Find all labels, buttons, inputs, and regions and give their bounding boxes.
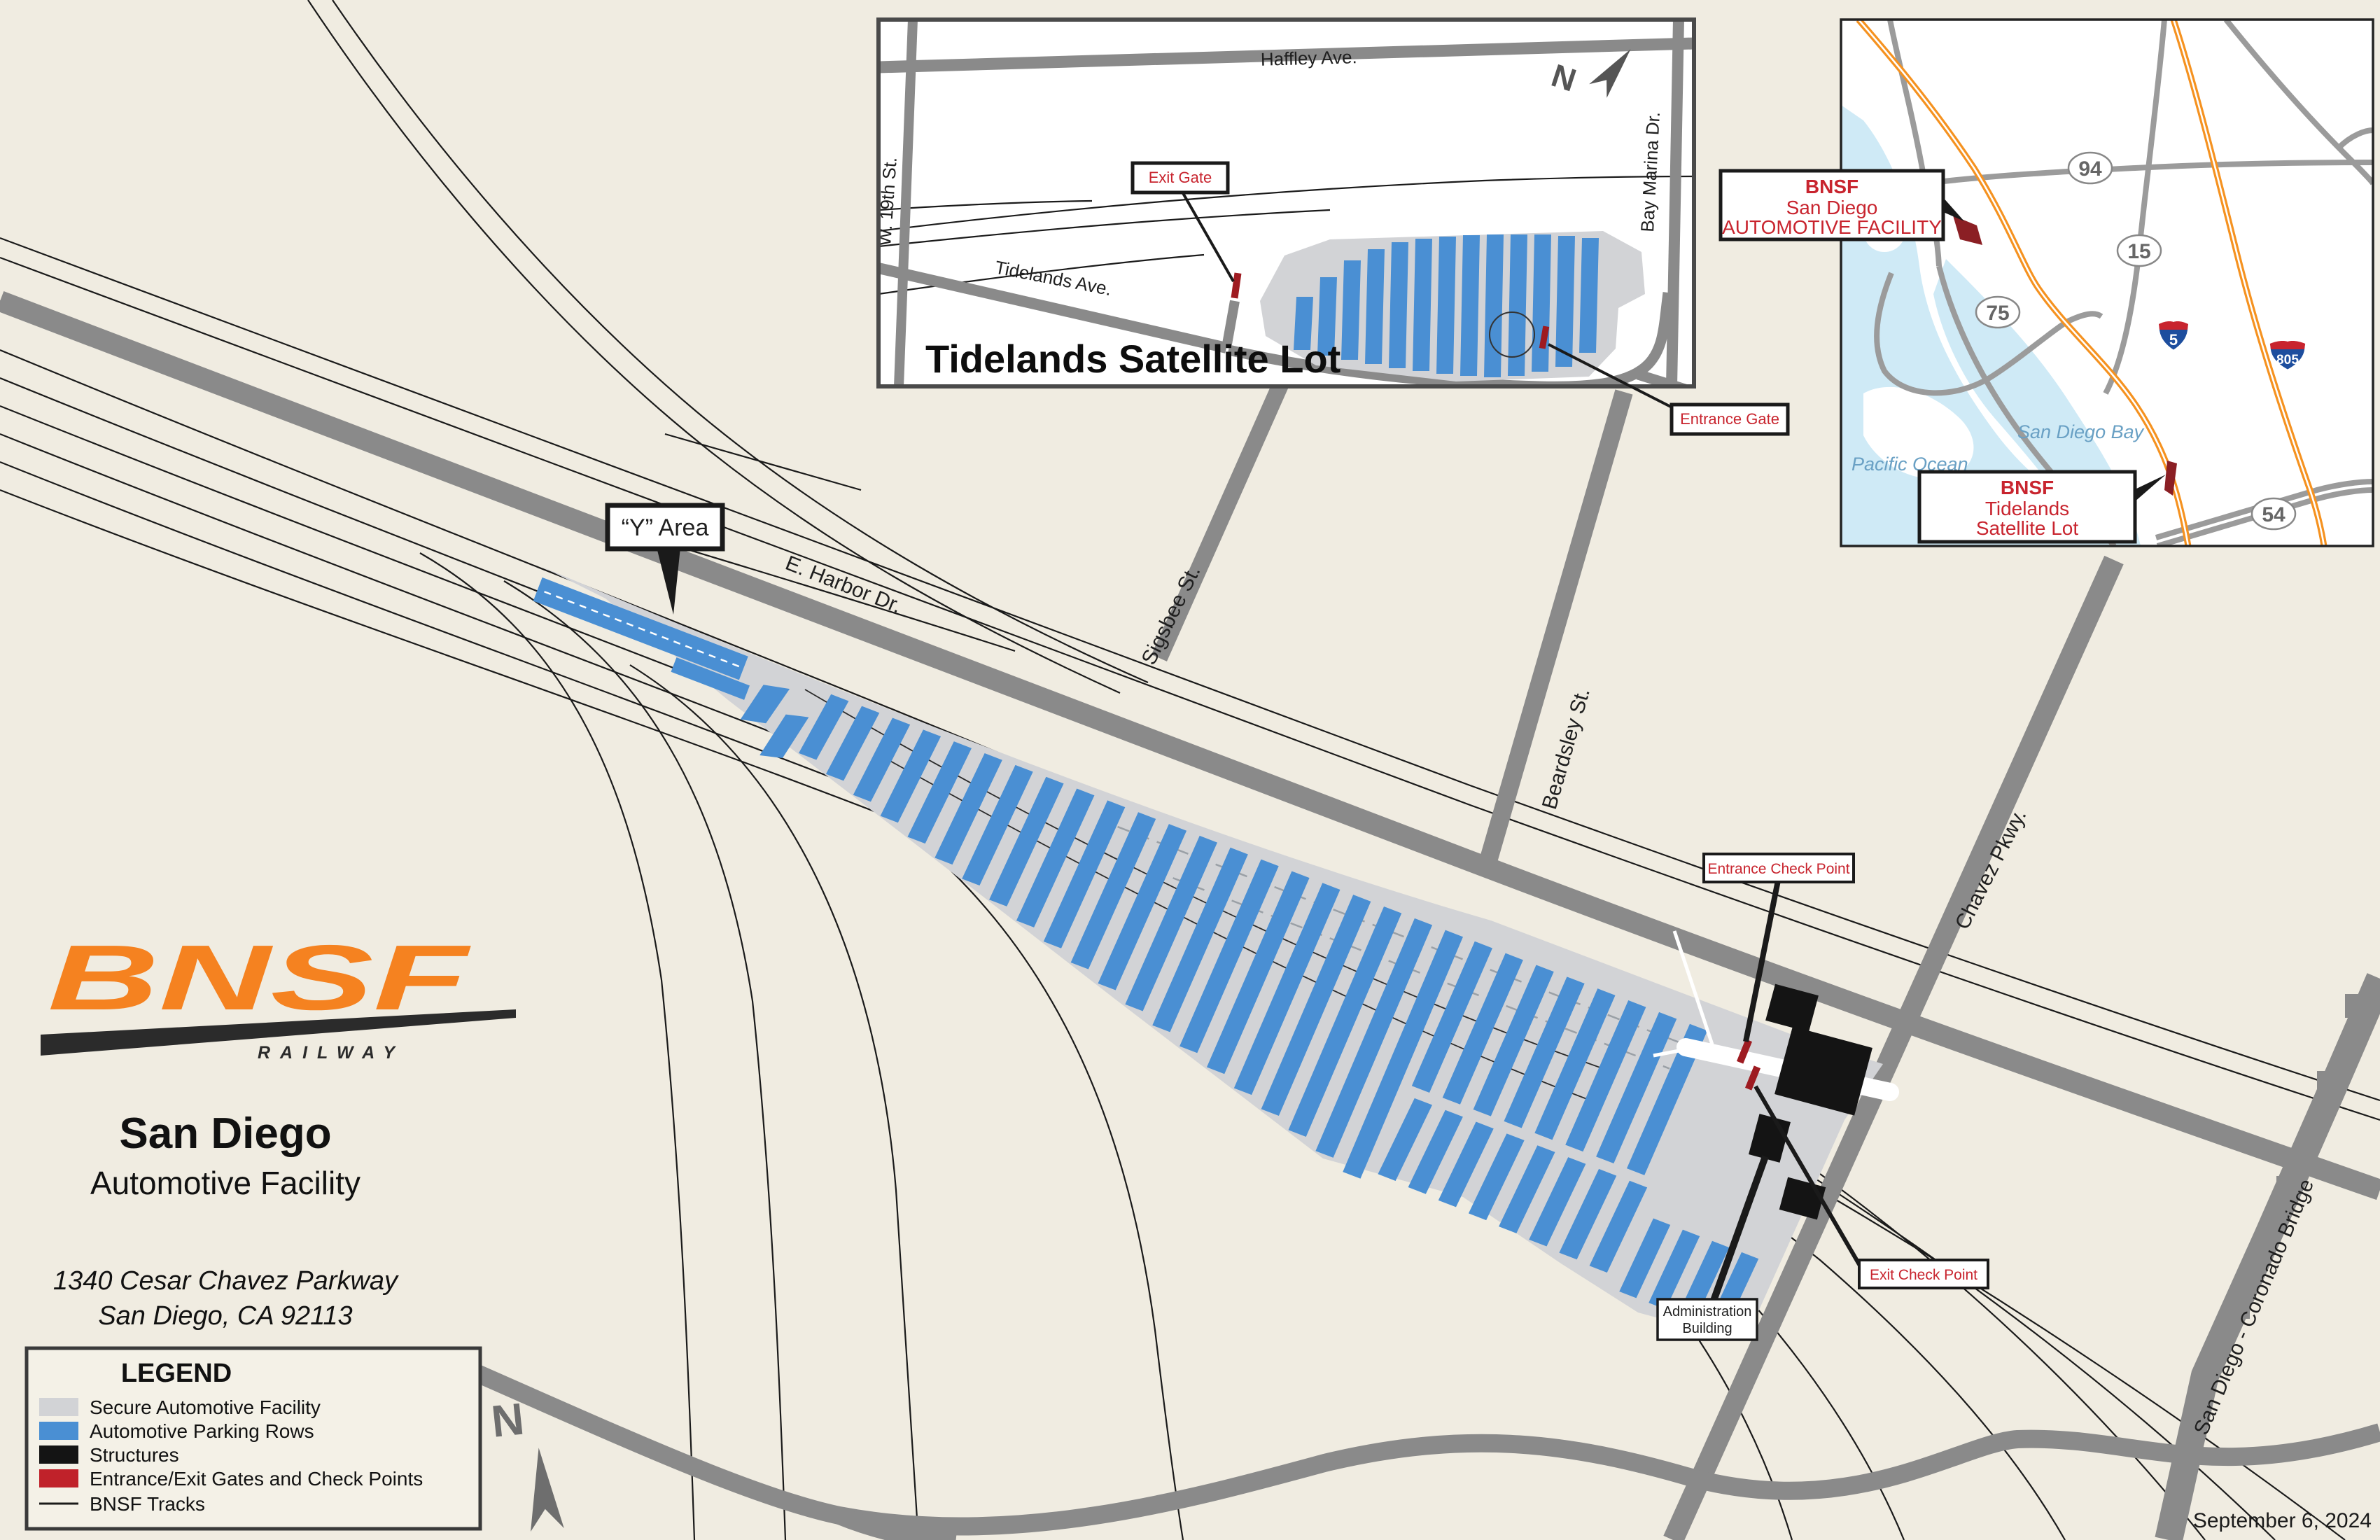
entrance-gate-label: Entrance Gate — [1680, 410, 1779, 428]
legend-label: BNSF Tracks — [90, 1493, 205, 1515]
street-label-haffley: Haffley Ave. — [1260, 46, 1357, 70]
legend-swatch-structures — [39, 1445, 78, 1464]
tidelands-callout-line1: BNSF — [2001, 477, 2054, 498]
y-area-label: “Y” Area — [622, 514, 709, 541]
legend-title: LEGEND — [121, 1359, 232, 1388]
legend-label: Structures — [90, 1444, 179, 1466]
bnsf-logo-text: BNSF — [48, 926, 472, 1029]
route-15-shield: 15 — [2127, 240, 2150, 263]
page-title-city: San Diego — [119, 1109, 331, 1158]
facility-callout-line2: San Diego — [1786, 197, 1878, 218]
tidelands-inset: Haffley Ave. W. 19th St. Bay Marina Dr. … — [874, 20, 1788, 434]
tidelands-callout-line3: Satellite Lot — [1976, 517, 2079, 539]
legend-label: Entrance/Exit Gates and Check Points — [90, 1468, 423, 1490]
north-letter: N — [489, 1393, 526, 1446]
svg-text:5: 5 — [2169, 331, 2178, 349]
regional-tidelands-callout: BNSF Tidelands Satellite Lot — [1919, 472, 2166, 542]
san-diego-bay-label: San Diego Bay — [2017, 421, 2145, 442]
map-date: September 6, 2024 — [2193, 1509, 2372, 1532]
legend-swatch-gates — [39, 1469, 78, 1487]
exit-check-label: Exit Check Point — [1870, 1267, 1977, 1283]
address-line2: San Diego, CA 92113 — [98, 1301, 352, 1331]
administration-label-line2: Building — [1682, 1321, 1732, 1336]
route-94-shield: 94 — [2078, 157, 2102, 181]
legend-label: Automotive Parking Rows — [90, 1420, 314, 1442]
svg-text:805: 805 — [2276, 353, 2299, 367]
exit-gate-label: Exit Gate — [1149, 169, 1212, 186]
tidelands-inset-title: Tidelands Satellite Lot — [925, 337, 1340, 381]
regional-facility-callout: BNSF San Diego AUTOMOTIVE FACILITY — [1721, 171, 1964, 239]
tidelands-callout-line2: Tidelands — [1985, 498, 2069, 519]
page-title-facility: Automotive Facility — [90, 1165, 360, 1201]
facility-callout-line3: AUTOMOTIVE FACILITY — [1722, 216, 1942, 238]
address-line1: 1340 Cesar Chavez Parkway — [53, 1266, 399, 1296]
legend-label: Secure Automotive Facility — [90, 1396, 321, 1418]
map-canvas: E. Harbor Dr. Sigsbee St. Beardsley St. … — [0, 0, 2380, 1540]
bnsf-logo-railway: RAILWAY — [258, 1043, 405, 1063]
administration-label-line1: Administration — [1663, 1304, 1752, 1319]
bay-marina-dr-road — [1672, 20, 1679, 386]
legend: LEGEND Secure Automotive Facility Automo… — [27, 1348, 480, 1529]
legend-swatch-parking — [39, 1422, 78, 1440]
legend-swatch-facility — [39, 1398, 78, 1416]
route-75-shield: 75 — [1986, 302, 2009, 325]
facility-callout-line1: BNSF — [1805, 176, 1858, 197]
entrance-check-label: Entrance Check Point — [1707, 861, 1849, 877]
bnsf-facility-map-page: { "colors": { "background": "#f0ece1", "… — [0, 0, 2380, 1540]
route-54-shield: 54 — [2262, 503, 2285, 526]
